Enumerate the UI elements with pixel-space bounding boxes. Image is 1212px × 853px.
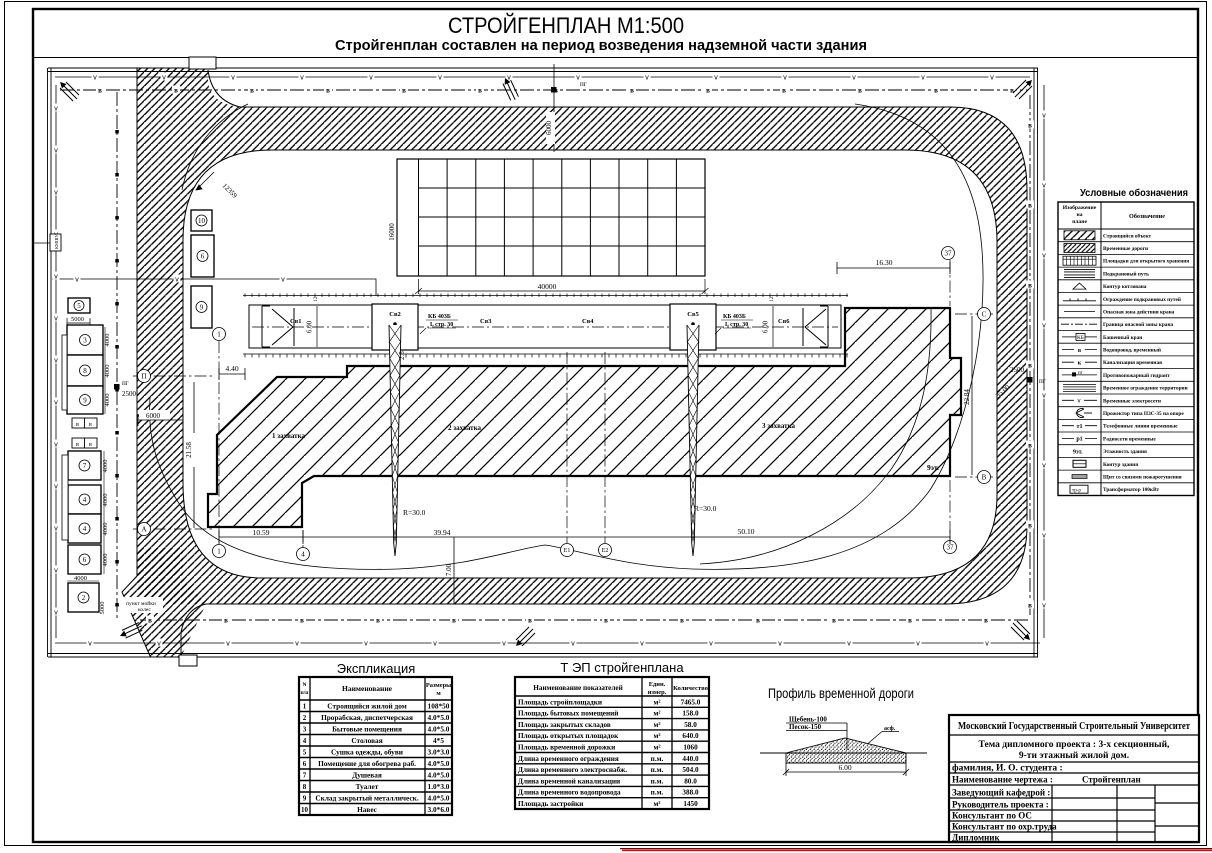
svg-text:пункт мойки: пункт мойки [126, 600, 156, 607]
svg-text:388.0: 388.0 [682, 789, 699, 797]
svg-text:58.0: 58.0 [684, 721, 697, 729]
svg-text:4.40: 4.40 [225, 364, 238, 373]
svg-text:9: 9 [303, 794, 307, 802]
svg-text:м: м [436, 690, 441, 697]
svg-text:4000: 4000 [102, 554, 109, 567]
svg-text:Наименование показателей: Наименование показателей [533, 684, 622, 692]
svg-text:6.00: 6.00 [306, 320, 314, 333]
svg-text:колес: колес [138, 607, 151, 613]
svg-text:3: 3 [83, 337, 87, 345]
svg-text:Ограждение подкрановых путей: Ограждение подкрановых путей [1103, 296, 1181, 303]
svg-text:8: 8 [83, 367, 87, 375]
svg-text:Заведующий кафедрой :: Заведующий кафедрой : [952, 788, 1050, 798]
svg-text:7465.0: 7465.0 [681, 698, 701, 706]
svg-text:Размеры: Размеры [426, 682, 451, 689]
svg-text:1: 1 [217, 548, 221, 556]
svg-text:Водопровод, временный: Водопровод, временный [1103, 347, 1161, 354]
svg-text:5: 5 [303, 748, 307, 756]
svg-text:в: в [89, 422, 92, 428]
svg-text:Площадь стройплощадки: Площадь стройплощадки [518, 698, 602, 706]
svg-text:Площадки для открытого хранени: Площадки для открытого хранения [1103, 259, 1189, 265]
svg-text:Щит со связями пожаротушения: Щит со связями пожаротушения [1103, 475, 1182, 481]
svg-text:1060: 1060 [683, 744, 698, 752]
svg-text:5000: 5000 [71, 316, 84, 323]
svg-text:1: 1 [303, 702, 307, 710]
svg-text:4.0*5.0: 4.0*5.0 [428, 759, 450, 768]
svg-text:2: 2 [303, 714, 307, 722]
svg-text:Телефонные линии временные: Телефонные линии временные [1103, 423, 1178, 430]
svg-text:Руководитель проекта :: Руководитель проекта : [952, 800, 1049, 810]
svg-text:Стройгенплан: Стройгенплан [1082, 775, 1141, 785]
svg-text:м²: м² [653, 698, 660, 706]
svg-text:16.30: 16.30 [876, 258, 893, 267]
svg-text:4.0*5.0: 4.0*5.0 [428, 770, 450, 779]
svg-text:Площадь застройки: Площадь застройки [518, 800, 583, 808]
svg-text:Временное ограждение территори: Временное ограждение территории [1103, 386, 1188, 392]
svg-text:5: 5 [77, 302, 81, 310]
svg-text:т1: т1 [1077, 424, 1083, 430]
svg-text:м²: м² [653, 744, 660, 752]
svg-text:1450: 1450 [683, 800, 698, 808]
svg-text:Трансформатор 100кВт: Трансформатор 100кВт [1103, 486, 1160, 493]
svg-text:1 захватка: 1 захватка [272, 432, 306, 440]
svg-text:Временные электросети: Временные электросети [1103, 398, 1161, 404]
svg-text:Прожектор типа ПЗС-35 на опоре: Прожектор типа ПЗС-35 на опоре [1103, 411, 1184, 417]
svg-text:пг: пг [1039, 377, 1046, 385]
svg-text:10: 10 [198, 217, 206, 225]
svg-text:Е2: Е2 [602, 548, 609, 554]
svg-text:Этажность здания: Этажность здания [1103, 449, 1147, 455]
svg-text:Наименование: Наименование [342, 684, 393, 693]
svg-text:3.0*3.0: 3.0*3.0 [428, 747, 450, 756]
svg-text:Опасная зона действия крана: Опасная зона действия крана [1103, 309, 1175, 316]
svg-text:10: 10 [301, 806, 309, 814]
svg-text:Временные дороги: Временные дороги [1103, 246, 1148, 252]
svg-text:6: 6 [303, 760, 307, 768]
svg-text:Длина временного ограждения: Длина временного ограждения [518, 755, 619, 763]
svg-text:3: 3 [303, 725, 307, 733]
svg-text:Песок-150: Песок-150 [789, 723, 822, 731]
svg-text:440.0: 440.0 [682, 755, 699, 763]
svg-text:Св3: Св3 [480, 318, 492, 325]
svg-text:Един.: Един. [649, 681, 666, 688]
svg-text:к: к [1078, 361, 1082, 367]
svg-text:Консультант по охр.труда: Консультант по охр.труда [952, 822, 1057, 832]
svg-text:6: 6 [201, 253, 205, 261]
svg-text:Профиль временной дороги: Профиль временной дороги [768, 686, 914, 701]
svg-text:9-ти этажный жилой дом.: 9-ти этажный жилой дом. [1019, 750, 1129, 761]
svg-text:м²: м² [653, 710, 660, 718]
svg-text:Граница опасной зоны крана: Граница опасной зоны крана [1103, 321, 1173, 328]
svg-text:КБ 403Б: КБ 403Б [428, 314, 451, 320]
svg-text:измер.: измер. [648, 689, 667, 696]
svg-text:4*5: 4*5 [433, 736, 444, 745]
svg-text:п.м.: п.м. [651, 777, 664, 785]
svg-text:Тема дипломного проекта : 3-х: Тема дипломного проекта : 3-х секционный… [979, 739, 1171, 750]
svg-text:2: 2 [82, 594, 86, 602]
svg-text:4.0*5.0: 4.0*5.0 [428, 724, 450, 733]
svg-text:L стр. 30: L стр. 30 [725, 322, 748, 328]
svg-text:Св4: Св4 [582, 318, 594, 325]
svg-text:Св6: Св6 [778, 318, 790, 325]
svg-text:80.0: 80.0 [684, 777, 697, 785]
svg-text:КБ: КБ [1077, 335, 1084, 341]
svg-text:Подкрановый путь: Подкрановый путь [1103, 270, 1149, 277]
svg-text:37: 37 [947, 544, 955, 552]
svg-text:7.00: 7.00 [445, 563, 453, 576]
svg-text:6000: 6000 [146, 412, 161, 420]
svg-text:8: 8 [303, 783, 307, 791]
svg-text:Противопожарный гидрант: Противопожарный гидрант [1103, 372, 1170, 379]
svg-text:21.58: 21.58 [185, 442, 193, 458]
svg-text:Е1: Е1 [564, 548, 571, 554]
svg-text:1: 1 [217, 331, 221, 339]
svg-text:Длина временного водопровода: Длина временного водопровода [518, 789, 621, 797]
svg-text:пг: пг [122, 379, 129, 387]
svg-text:тр-р: тр-р [1072, 489, 1081, 494]
svg-text:Обозначение: Обозначение [1129, 213, 1165, 220]
svg-text:С: С [982, 311, 987, 319]
svg-text:В: В [982, 474, 987, 482]
svg-text:в: в [76, 422, 79, 428]
svg-text:Площадь закрытых складов: Площадь закрытых складов [518, 721, 611, 729]
svg-text:39.94: 39.94 [434, 528, 451, 537]
svg-text:37: 37 [945, 250, 953, 258]
svg-text:Московский Государственный Стр: Московский Государственный Строительный … [958, 721, 1190, 732]
svg-text:4000: 4000 [102, 523, 109, 536]
svg-text:7: 7 [83, 462, 87, 470]
svg-text:6000: 6000 [545, 121, 553, 136]
svg-text:22.84: 22.84 [963, 389, 971, 405]
svg-text:р1: р1 [1076, 437, 1082, 443]
svg-text:10.59: 10.59 [253, 528, 270, 537]
svg-text:640.0: 640.0 [682, 732, 699, 740]
svg-text:9эт.: 9эт. [927, 463, 939, 472]
svg-text:А: А [141, 526, 146, 534]
svg-text:12: 12 [769, 296, 775, 302]
svg-text:R=30.0: R=30.0 [694, 504, 717, 513]
svg-text:50.10: 50.10 [738, 527, 755, 536]
svg-text:N: N [302, 682, 306, 688]
svg-text:Площадь открытых площадок: Площадь открытых площадок [518, 732, 619, 740]
svg-text:Туалет: Туалет [356, 782, 379, 791]
svg-text:4000: 4000 [102, 460, 109, 473]
svg-text:7: 7 [303, 771, 307, 779]
svg-text:5000: 5000 [99, 602, 106, 615]
svg-text:9: 9 [83, 397, 87, 405]
svg-text:пг: пг [1078, 371, 1083, 376]
svg-text:Длина временного электроснабж.: Длина временного электроснабж. [518, 766, 627, 774]
svg-text:Изображение: Изображение [1063, 204, 1097, 211]
svg-text:асф.: асф. [884, 725, 896, 732]
svg-text:Склад закрытый металлическ.: Склад закрытый металлическ. [315, 793, 418, 802]
svg-text:Строящийся объект: Строящийся объект [1103, 232, 1152, 239]
svg-text:3 захватка: 3 захватка [762, 422, 796, 430]
svg-text:9эт.: 9эт. [1073, 449, 1083, 455]
svg-text:плане: плане [1072, 219, 1087, 225]
svg-text:6: 6 [83, 556, 87, 564]
svg-text:п/п: п/п [300, 690, 309, 696]
svg-text:м²: м² [653, 732, 660, 740]
svg-text:фамилия, И. О. студента :: фамилия, И. О. студента : [952, 763, 1063, 774]
svg-text:м²: м² [653, 800, 660, 808]
svg-text:2500: 2500 [122, 390, 137, 398]
svg-text:4.0*5.0: 4.0*5.0 [428, 713, 450, 722]
svg-text:Бытовые помещения: Бытовые помещения [332, 724, 402, 733]
svg-text:Длина временной канализации: Длина временной канализации [518, 777, 620, 785]
svg-text:6.00: 6.00 [838, 763, 851, 772]
svg-text:2.5: 2.5 [398, 351, 406, 360]
svg-text:2 захватка: 2 захватка [448, 424, 482, 432]
svg-text:Наименование чертежа :: Наименование чертежа : [952, 775, 1053, 785]
svg-text:Дипломник: Дипломник [952, 833, 1000, 843]
svg-text:Св1: Св1 [290, 318, 301, 325]
svg-text:СТРОЙГЕНПЛАН М1:500: СТРОЙГЕНПЛАН М1:500 [448, 13, 684, 38]
svg-text:Помещение для обогрева раб.: Помещение для обогрева раб. [318, 759, 416, 768]
svg-text:Св5: Св5 [687, 311, 699, 318]
svg-text:пг: пг [580, 80, 587, 88]
svg-text:КМШУ: КМШУ [54, 233, 59, 249]
svg-text:Столовая: Столовая [351, 736, 382, 745]
svg-text:Башенный кран: Башенный кран [1103, 334, 1142, 341]
svg-text:Экспликация: Экспликация [337, 661, 416, 676]
svg-text:108*50: 108*50 [428, 701, 450, 710]
svg-text:в: в [76, 442, 79, 448]
svg-text:на: на [1076, 212, 1082, 218]
svg-text:Душевая: Душевая [352, 770, 382, 779]
svg-text:3.0*6.0: 3.0*6.0 [428, 805, 450, 814]
svg-text:Сушка одежды, обуви: Сушка одежды, обуви [331, 747, 404, 756]
svg-text:м²: м² [653, 721, 660, 729]
svg-text:158.0: 158.0 [682, 710, 699, 718]
svg-text:4000: 4000 [102, 494, 109, 507]
svg-text:Площадь бытовых помещений: Площадь бытовых помещений [518, 710, 618, 718]
svg-text:Количество: Количество [673, 685, 709, 692]
svg-text:КБ 403Б: КБ 403Б [723, 314, 746, 320]
svg-text:6.00: 6.00 [762, 320, 770, 333]
svg-text:п.м.: п.м. [651, 755, 664, 763]
svg-text:Радиосети временные: Радиосети временные [1103, 436, 1156, 442]
svg-text:Канализация временная: Канализация временная [1103, 360, 1162, 366]
svg-text:Т ЭП стройгенплана: Т ЭП стройгенплана [560, 660, 684, 675]
svg-text:12: 12 [313, 296, 319, 302]
svg-text:Контур здания: Контур здания [1103, 462, 1138, 468]
svg-text:Св2: Св2 [389, 311, 400, 318]
svg-text:4: 4 [83, 525, 87, 533]
svg-text:16000: 16000 [388, 223, 396, 241]
svg-text:4.0*5.0: 4.0*5.0 [428, 793, 450, 802]
svg-text:Условные обозначения: Условные обозначения [1080, 187, 1188, 199]
svg-text:504.0: 504.0 [682, 766, 699, 774]
svg-text:Контур котлована: Контур котлована [1103, 284, 1147, 290]
svg-text:4: 4 [301, 551, 305, 559]
svg-text:4: 4 [303, 737, 307, 745]
svg-text:Консультант по ОС: Консультант по ОС [952, 811, 1032, 821]
svg-text:Строящийся жилой дом: Строящийся жилой дом [327, 701, 406, 710]
svg-text:40000: 40000 [538, 282, 557, 291]
svg-text:1.0*3.0: 1.0*3.0 [428, 782, 450, 791]
svg-text:Прорабская, диспетчерская: Прорабская, диспетчерская [321, 713, 413, 722]
svg-text:9: 9 [200, 304, 204, 312]
svg-text:Навес: Навес [357, 805, 378, 814]
svg-text:L стр. 30: L стр. 30 [430, 322, 453, 328]
svg-text:R=30.0: R=30.0 [403, 508, 426, 517]
svg-text:п.м.: п.м. [651, 766, 664, 774]
svg-text:в: в [89, 442, 92, 448]
svg-text:П: П [141, 373, 146, 381]
svg-text:2500: 2500 [1010, 366, 1025, 374]
svg-text:v: v [1078, 399, 1081, 405]
svg-text:Площадь временной дорожки: Площадь временной дорожки [518, 744, 615, 752]
svg-text:4: 4 [83, 496, 87, 504]
svg-text:п.м.: п.м. [651, 789, 664, 797]
svg-text:Стройгенплан составлен на пери: Стройгенплан составлен на период возведе… [335, 38, 867, 54]
